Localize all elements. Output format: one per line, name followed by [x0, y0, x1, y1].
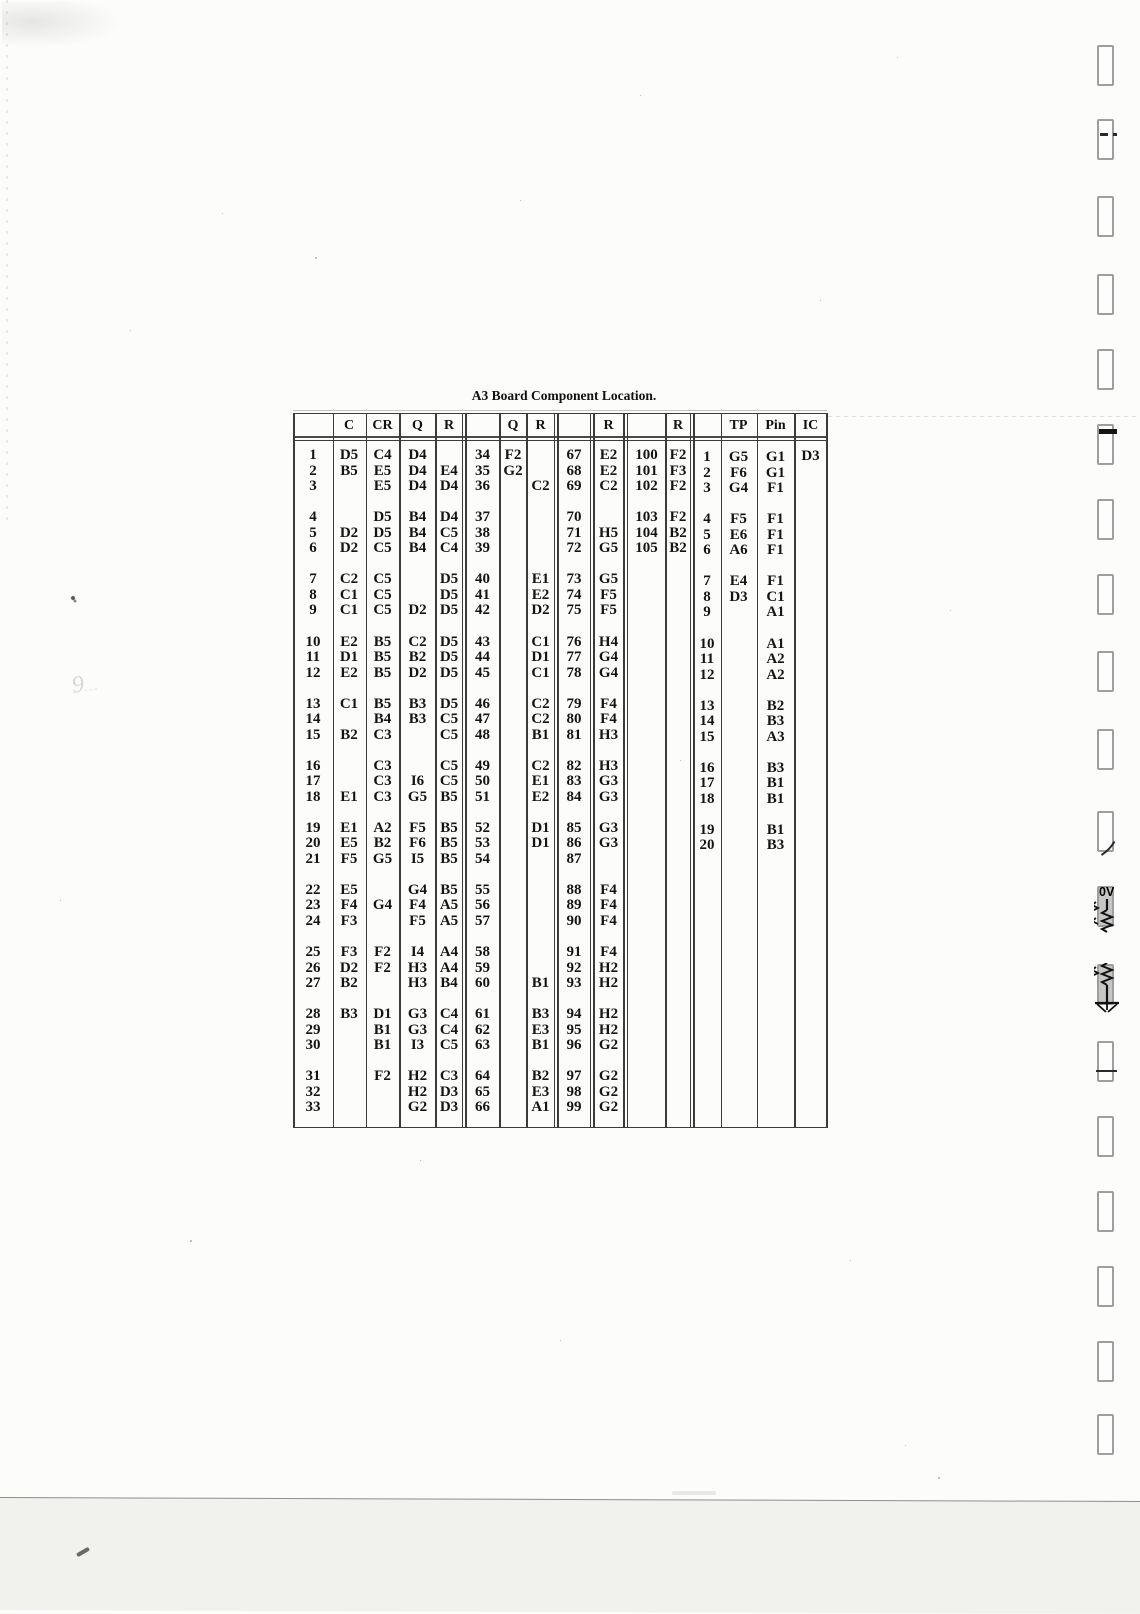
- svg-text:0V: 0V: [1099, 885, 1115, 899]
